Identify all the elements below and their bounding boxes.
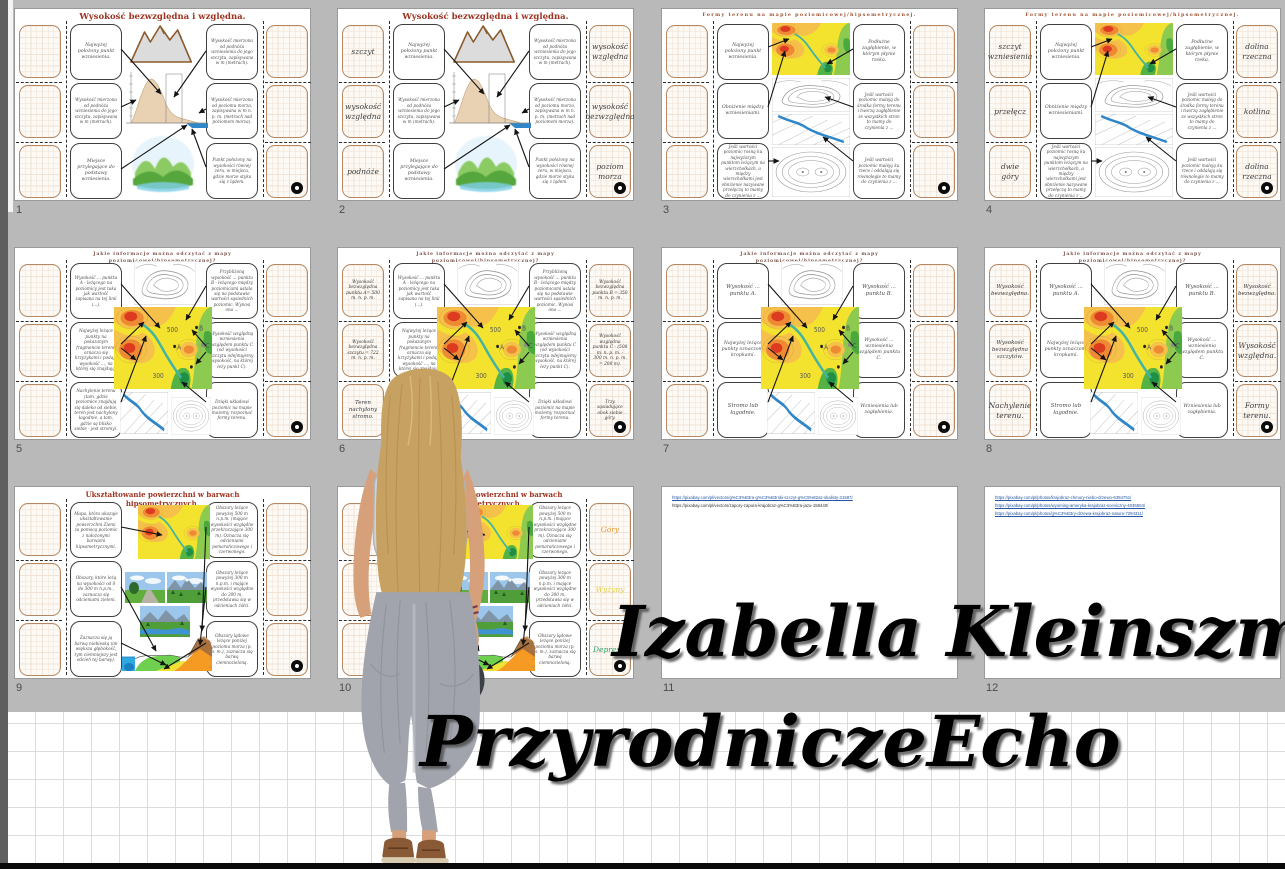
clue-text: Najwyżej leżące punkty oznaczono kropkam… [1044, 341, 1088, 359]
svg-text:B: B [1169, 324, 1173, 333]
clue-box: Punkt położony na wysokości równej zeru,… [206, 143, 258, 199]
dashed-divider [663, 82, 709, 83]
answer-text: dolina rzeczna [1239, 42, 1275, 61]
clue-text: Wzniesienia lub zagłębienia. [1180, 404, 1224, 416]
svg-text:A: A [1147, 343, 1151, 352]
clue-box: Stromo lub łagodnie. [717, 382, 769, 438]
clue-text: Wysokość ... wzniesienia względem punktu… [857, 338, 901, 362]
clue-text: Punkt położony na wysokości równej zeru,… [533, 157, 577, 184]
hide-answers-icon[interactable] [614, 182, 626, 194]
hide-answers-icon[interactable] [938, 421, 950, 433]
clue-box: Jeśli wartości poziomic maleją ku rzece … [1176, 143, 1228, 199]
clue-box: Dzięki układowi poziomic na mapie możemy… [529, 382, 581, 438]
clue-text: Wysokość ... punktu B. [1180, 284, 1224, 298]
clue-box: Przybliżoną wysokość ... punktu B - leżą… [206, 263, 258, 319]
dashed-divider [1235, 321, 1281, 322]
source-links: https://pixabay.com/pl/vectors/g%C3%B3ra… [672, 495, 949, 511]
dashed-divider [16, 381, 62, 382]
answer-box[interactable]: Wysokość bezwzględna. [989, 264, 1031, 317]
clue-box: Obszary leżące powyżej 500 m n.p.m. (maj… [206, 502, 258, 558]
clue-box: Obszary leżące powyżej 300 m n.p.m. i ma… [529, 561, 581, 617]
dashed-divider [912, 82, 958, 83]
slide-title: Wysokość bezwzględna i względna. [35, 12, 290, 22]
valley-photo [140, 606, 190, 637]
clue-text: Wysokość ... punktu B. [857, 284, 901, 298]
dashed-divider [1235, 82, 1281, 83]
clue-text: Wysokość mierzona od poziomu morza, zapi… [533, 97, 577, 124]
clue-text: Obszary leżące powyżej 500 m n.p.m. (maj… [533, 505, 577, 554]
svg-text:B: B [846, 324, 850, 333]
svg-text:500: 500 [167, 326, 178, 335]
clue-box: Podłużne zagłębienie, w którym płynie rz… [853, 24, 905, 80]
slide-thumbnail[interactable]: Jakie informacje można odczytać z mapy p… [661, 247, 958, 440]
hide-answers-icon[interactable] [938, 182, 950, 194]
answer-text: szczyt [351, 47, 374, 56]
answer-box[interactable] [19, 85, 61, 138]
clue-text: Przybliżoną wysokość ... punktu B - leżą… [533, 269, 577, 313]
clue-text: Obniżenie między wzniesieniami. [721, 105, 765, 117]
dashed-divider [66, 260, 67, 436]
answer-text: wysokość względna [345, 102, 381, 121]
source-links: https://pixabay.com/pl/photos/krajobraz-… [995, 495, 1272, 519]
clue-text: Obszary leżące powyżej 500 m n.p.m. (maj… [210, 505, 254, 554]
answer-text: przełęcz [994, 107, 1026, 116]
dashed-divider [986, 142, 1032, 143]
elevation-profile-image [445, 66, 531, 132]
svg-text:B: B [199, 324, 203, 333]
dashed-divider [912, 142, 958, 143]
answer-text: dwie góry [992, 162, 1028, 181]
answer-box[interactable]: kotlina [1236, 85, 1278, 138]
dashed-divider [16, 620, 62, 621]
river-contour-image [772, 114, 850, 145]
left-edge-strip [0, 0, 8, 869]
dashed-divider [265, 381, 311, 382]
answer-box[interactable]: Wysokość bezwzględna szczytów. [989, 324, 1031, 377]
slide-thumbnail[interactable]: Jakie informacje można odczytać z mapy p… [984, 247, 1281, 440]
clue-box: Obniżenie między wzniesieniami. [1040, 83, 1092, 139]
answer-box[interactable] [666, 145, 708, 198]
contour-map-image [457, 261, 519, 305]
svg-text:500: 500 [490, 326, 501, 335]
svg-text:B: B [522, 324, 526, 333]
clue-text: Wzniesienia lub zagłębienia. [857, 404, 901, 416]
clue-text: Jeśli wartości poziomic maleją do środka… [1180, 92, 1224, 130]
hide-answers-icon[interactable] [1261, 421, 1273, 433]
clue-box: Obniżenie między wzniesieniami. [717, 83, 769, 139]
dashed-divider [16, 82, 62, 83]
slide-number: 1 [16, 204, 22, 216]
dashed-divider [16, 560, 62, 561]
answer-box[interactable]: Góry [589, 503, 631, 556]
clue-text: Podłużne zagłębienie, w którym płynie rz… [1180, 40, 1224, 64]
clue-box: Jeśli wartości poziomic maleją do środka… [1176, 83, 1228, 139]
dashed-divider [713, 21, 714, 197]
dashed-divider [986, 381, 1032, 382]
answer-box[interactable] [266, 324, 308, 377]
answer-box[interactable] [19, 25, 61, 78]
source-link[interactable]: https://pixabay.com/pl/photos/g%C3%B3ry-… [995, 511, 1272, 517]
slide-number: 7 [663, 443, 669, 455]
two-peaks-contour-image [1141, 397, 1181, 435]
hide-answers-icon[interactable] [291, 182, 303, 194]
dashed-divider [912, 321, 958, 322]
slide-number: 5 [16, 443, 22, 455]
answer-text: Nachylenie terenu. [989, 401, 1032, 420]
svg-text:300: 300 [1123, 371, 1134, 380]
clue-box: Miejsce przylegające do podstawy wzniesi… [70, 143, 122, 199]
answer-text: Trzy sąsiadujące obok siebie góry. [592, 400, 628, 422]
answer-box[interactable] [913, 85, 955, 138]
svg-text:300: 300 [153, 371, 164, 380]
answer-box[interactable] [266, 25, 308, 78]
answer-box[interactable] [19, 264, 61, 317]
answer-box[interactable] [19, 563, 61, 616]
dashed-divider [586, 499, 587, 675]
clue-text: Wysokość mierzona od podnóża wzniesienia… [533, 38, 577, 65]
clue-box: Wysokość mierzona od podnóża wzniesienia… [70, 83, 122, 139]
two-peaks-contour-image [171, 397, 211, 435]
clue-text: Wysokość mierzona od podnóża wzniesienia… [210, 38, 254, 65]
dashed-divider [910, 21, 911, 197]
clue-text: Miejsce przylegające do podstawy wzniesi… [397, 159, 441, 183]
dashed-divider [713, 260, 714, 436]
clue-text: Nachylenie terenu (tam, gdzie poziomice … [74, 388, 118, 432]
answer-box[interactable]: wysokość względna [589, 25, 631, 78]
clue-text: Punkt położony na wysokości równej zeru,… [210, 157, 254, 184]
slide-thumbnail[interactable]: Formy terenu na mapie poziomicowej/hipso… [661, 8, 958, 201]
slide-thumbnail[interactable]: Jakie informacje można odczytać z mapy p… [14, 247, 311, 440]
svg-text:C: C [853, 341, 857, 350]
clue-text: Wysokość mierzona od podnóża wzniesienia… [397, 97, 441, 124]
dashed-divider [265, 560, 311, 561]
source-link[interactable]: https://pixabay.com/pl/vectors/g%C3%B3ra… [672, 495, 949, 501]
clue-text: Wysokość ... punktu A - leżącego na pozi… [397, 275, 441, 308]
clue-box: Najwyżej położony punkt wzniesienia. [70, 24, 122, 80]
dashed-divider [1233, 260, 1234, 436]
clue-box: Wysokość ... punktu B. [853, 263, 905, 319]
answer-box[interactable] [666, 264, 708, 317]
clue-text: Jeśli wartości poziomic rosną ku najwyżs… [1044, 144, 1088, 199]
answer-box[interactable] [913, 25, 955, 78]
clue-text: Wysokość względną wzniesienia względem p… [210, 331, 254, 369]
clue-text: Najwyżej leżące punkty na pokazanym frag… [74, 328, 118, 372]
clue-box: Wysokość mierzona od podnóża wzniesienia… [206, 24, 258, 80]
landscape-photo [125, 572, 165, 603]
clue-text: Wysokość ... punktu A - leżącego na pozi… [74, 275, 118, 308]
clue-box: Wysokość ... wzniesienia względem punktu… [1176, 322, 1228, 378]
dashed-divider [1233, 21, 1234, 197]
answer-text: podnóże [347, 167, 379, 176]
two-peaks-contour-image [818, 397, 858, 435]
contour-map-image [1095, 78, 1173, 112]
slide-number: 4 [986, 204, 992, 216]
dashed-divider [16, 142, 62, 143]
answer-text: wysokość względna [592, 42, 628, 61]
slide-number: 12 [986, 682, 998, 694]
clue-text: Obszary leżące powyżej 300 m n.p.m. i ma… [533, 570, 577, 608]
answer-box[interactable] [666, 25, 708, 78]
clue-text: Jeśli wartości poziomic maleją do środka… [857, 92, 901, 130]
slide-number: 9 [16, 682, 22, 694]
answer-text: Góry [601, 525, 619, 534]
dashed-divider [1235, 381, 1281, 382]
dashed-divider [1036, 21, 1037, 197]
answer-box[interactable]: podnóże [342, 145, 384, 198]
dashed-divider [1235, 142, 1281, 143]
answer-box[interactable] [913, 264, 955, 317]
clue-box: Wysokość ... punktu B. [1176, 263, 1228, 319]
answer-box[interactable]: przełęcz [989, 85, 1031, 138]
clue-text: Najwyżej położony punkt wzniesienia. [397, 43, 441, 61]
clue-box: Dzięki układowi poziomic na mapie możemy… [206, 382, 258, 438]
dashed-divider [263, 260, 264, 436]
clue-box: Zaznacza się ją barwą niebieską (im więk… [70, 621, 122, 677]
answer-box[interactable]: Wysokość bezwzględna. [1236, 264, 1278, 317]
dashed-divider [265, 321, 311, 322]
river-contour-image [767, 392, 815, 434]
clue-box: Wysokość ... wzniesienia względem punktu… [853, 322, 905, 378]
person-photo [330, 362, 510, 867]
clue-box: Najwyżej położony punkt wzniesienia. [1040, 24, 1092, 80]
source-link[interactable]: https://pixabay.com/pl/vectors/zapory-za… [672, 503, 949, 509]
clue-text: Wysokość ... wzniesienia względem punktu… [1180, 338, 1224, 362]
answer-text: Wysokość bezwzględna punktu A= 500 m. n.… [345, 280, 381, 302]
clue-text: Podłużne zagłębienie, w którym płynie rz… [857, 40, 901, 64]
dashed-divider [986, 82, 1032, 83]
dashed-divider [339, 142, 385, 143]
answer-text: Wysokość bezwzględna szczytu = 722 m. n.… [345, 340, 381, 362]
clue-box: Podłużne zagłębienie, w którym płynie rz… [1176, 24, 1228, 80]
clue-text: Najwyżej leżące punkty oznaczono kropkam… [721, 341, 765, 359]
svg-text:A: A [824, 343, 828, 352]
hypsometric-map-image: 500ABC300 [114, 307, 212, 389]
dashed-divider [986, 321, 1032, 322]
answer-box[interactable] [266, 563, 308, 616]
clue-box: Wysokość mierzona od poziomu morza, zapi… [206, 83, 258, 139]
answer-box[interactable] [913, 324, 955, 377]
dashed-divider [16, 321, 62, 322]
two-peaks-contour-image [1095, 147, 1173, 197]
clue-text: Wysokość mierzona od podnóża wzniesienia… [74, 97, 118, 124]
clue-box: Obszary lądowe leżące poniżej poziomu mo… [206, 621, 258, 677]
hypsometric-cross-section-image [122, 635, 212, 675]
clue-text: Miejsce przylegające do podstawy wzniesi… [74, 159, 118, 183]
dashed-divider [663, 321, 709, 322]
clue-text: Zaznacza się ją barwą niebieską (im więk… [74, 635, 118, 662]
clue-box: Jeśli wartości poziomic maleją ku rzece … [853, 143, 905, 199]
dashed-divider [265, 620, 311, 621]
dashed-divider [66, 499, 67, 675]
clue-box: Jeśli wartości poziomic maleją do środka… [853, 83, 905, 139]
contour-map-image [1104, 261, 1166, 305]
slide-title: Formy terenu na mapie poziomicowej/hipso… [682, 12, 937, 18]
answer-text: kotlina [1244, 107, 1270, 116]
answer-box[interactable]: szczyt wzniesienia [989, 25, 1031, 78]
clue-text: Dzięki układowi poziomic na mapie możemy… [210, 399, 254, 421]
clue-box: Jeśli wartości poziomic rosną ku najwyżs… [717, 143, 769, 199]
dashed-divider [265, 82, 311, 83]
clue-box: Wysokość względną wzniesienia względem p… [206, 322, 258, 378]
hide-answers-icon[interactable] [614, 421, 626, 433]
mountains-sketch-image [450, 22, 524, 64]
svg-text:300: 300 [800, 371, 811, 380]
dashed-divider [663, 142, 709, 143]
answer-box[interactable]: dolina rzeczna [1236, 25, 1278, 78]
answer-box[interactable] [266, 264, 308, 317]
answer-box[interactable] [266, 85, 308, 138]
dashed-divider [586, 260, 587, 436]
clue-box: Stromo lub łagodnie. [1040, 382, 1092, 438]
clue-box: Wzniesienia lub zagłębienia. [853, 382, 905, 438]
clue-text: Wysokość ... punktu A. [721, 284, 765, 298]
answer-text: Wysokość bezwzględna. [991, 284, 1029, 298]
dashed-divider [910, 260, 911, 436]
answer-box[interactable] [666, 324, 708, 377]
clue-box: Wysokość względną wzniesienia względem p… [529, 322, 581, 378]
answer-box[interactable] [19, 623, 61, 676]
dashed-divider [263, 499, 264, 675]
clue-text: Jeśli wartości poziomic rosną ku najwyżs… [721, 144, 765, 199]
dashed-divider [389, 21, 390, 197]
clue-box: Mapa, która ukazuje ukształtowanie powie… [70, 502, 122, 558]
slide-thumbnail[interactable]: Formy terenu na mapie poziomicowej/hipso… [984, 8, 1281, 201]
contour-map-image [772, 78, 850, 112]
clue-box: Najwyżej położony punkt wzniesienia. [717, 24, 769, 80]
hypsometric-map-image: 500ABC300 [761, 307, 859, 389]
landscape-image [454, 133, 518, 195]
slide-number: 2 [339, 204, 345, 216]
answer-box[interactable] [666, 85, 708, 138]
dashed-divider [1036, 260, 1037, 436]
answer-box[interactable]: wysokość bezwzględna [589, 85, 631, 138]
slide-thumbnail[interactable]: Ukształtowanie powierzchni w barwach hip… [14, 486, 311, 679]
partial-panel-edge [8, 0, 13, 212]
answer-text: Formy terenu. [1239, 401, 1275, 420]
answer-box[interactable] [19, 324, 61, 377]
answer-text: szczyt wzniesienia [988, 42, 1032, 61]
clue-box: Obszary, które leżą na wysokości od 0 do… [70, 561, 122, 617]
dashed-divider [263, 21, 264, 197]
mountains-sketch-image [127, 22, 201, 64]
clue-text: Najwyżej położony punkt wzniesienia. [721, 43, 765, 61]
svg-text:C: C [206, 341, 210, 350]
dashed-divider [588, 560, 634, 561]
clue-box: Nachylenie terenu (tam, gdzie poziomice … [70, 382, 122, 438]
brand-title-line1: Izabella Kleinszmidt – [612, 590, 1285, 673]
svg-text:C: C [1176, 341, 1180, 350]
answer-box[interactable] [19, 145, 61, 198]
clue-box: Wysokość mierzona od poziomu morza, zapi… [529, 83, 581, 139]
hide-answers-icon[interactable] [291, 421, 303, 433]
dashed-divider [588, 142, 634, 143]
clue-box: Punkt położony na wysokości równej zeru,… [529, 143, 581, 199]
answer-text: wysokość bezwzględna [585, 102, 634, 121]
slide-number: 8 [986, 443, 992, 455]
slide-title: Formy terenu na mapie poziomicowej/hipso… [1005, 12, 1260, 18]
clue-box: Obszary lądowe leżące poniżej poziomu mo… [529, 621, 581, 677]
clue-text: Najwyżej położony punkt wzniesienia. [74, 43, 118, 61]
answer-box[interactable] [19, 384, 61, 437]
svg-text:C: C [529, 341, 533, 350]
dashed-divider [339, 82, 385, 83]
clue-text: Mapa, która ukazuje ukształtowanie powie… [74, 511, 118, 549]
clue-text: Obszary lądowe leżące poniżej poziomu mo… [210, 633, 254, 666]
answer-text: dolina rzeczna [1239, 162, 1275, 181]
answer-box[interactable]: Wysokość względna. [1236, 324, 1278, 377]
answer-text: Wysokość bezwzględna punktu B = 350 m. n… [592, 280, 628, 302]
hide-answers-icon[interactable] [291, 660, 303, 672]
river-contour-image [1095, 114, 1173, 145]
svg-text:A: A [500, 343, 504, 352]
landscape-image [131, 133, 195, 195]
hypsometric-map-image [1095, 23, 1173, 75]
answer-box[interactable] [666, 384, 708, 437]
answer-box[interactable] [19, 503, 61, 556]
answer-box[interactable]: Wysokość względna punktu C - (508 m. n. … [589, 324, 631, 377]
answer-text: Wysokość bezwzględna szczytów. [992, 340, 1028, 361]
clue-box: Najwyżej położony punkt wzniesienia. [393, 24, 445, 80]
river-contour-image [120, 392, 168, 434]
dashed-divider [588, 82, 634, 83]
bottom-black-bar [0, 863, 1285, 869]
two-peaks-contour-image [772, 147, 850, 197]
clue-text: Obszary lądowe leżące poniżej poziomu mo… [533, 633, 577, 666]
dashed-divider [66, 21, 67, 197]
clue-text: Obniżenie między wzniesieniami. [1044, 105, 1088, 117]
answer-box[interactable]: Wysokość bezwzględna punktu A= 500 m. n.… [342, 264, 384, 317]
clue-text: Najwyżej położony punkt wzniesienia. [1044, 43, 1088, 61]
clue-text: Wysokość względną wzniesienia względem p… [533, 331, 577, 369]
clue-box: Miejsce przylegające do podstawy wzniesi… [393, 143, 445, 199]
dashed-divider [912, 381, 958, 382]
answer-text: poziom morza [592, 162, 628, 181]
dashed-divider [588, 381, 634, 382]
answer-box[interactable]: Wysokość bezwzględna punktu B = 350 m. n… [589, 264, 631, 317]
clue-text: Obszary, które leżą na wysokości od 0 do… [74, 575, 118, 602]
clue-text: Przybliżoną wysokość ... punktu B - leżą… [210, 269, 254, 313]
clue-text: Obszary leżące powyżej 300 m n.p.m. i ma… [210, 570, 254, 608]
slide-thumbnail[interactable]: Wysokość bezwzględna i względna.Najwyżej… [14, 8, 311, 201]
slide-number: 11 [663, 682, 674, 694]
clue-box: Wysokość mierzona od podnóża wzniesienia… [393, 83, 445, 139]
slide-thumbnail[interactable]: Wysokość bezwzględna i względna.szczytNa… [337, 8, 634, 201]
elevation-profile-image [122, 66, 208, 132]
answer-box[interactable]: wysokość względna [342, 85, 384, 138]
hypsometric-map-image [772, 23, 850, 75]
source-link[interactable]: https://pixabay.com/pl/photos/wyoming-am… [995, 503, 1272, 509]
source-link[interactable]: https://pixabay.com/pl/photos/krajobraz-… [995, 495, 1272, 501]
clue-box: Przybliżoną wysokość ... punktu B - leżą… [529, 263, 581, 319]
hide-answers-icon[interactable] [1261, 182, 1273, 194]
answer-box[interactable]: szczyt [342, 25, 384, 78]
clue-box: Obszary leżące powyżej 300 m n.p.m. i ma… [206, 561, 258, 617]
clue-text: Wysokość ... punktu A. [1044, 284, 1088, 298]
answer-box[interactable]: Nachylenie terenu. [989, 384, 1031, 437]
dashed-divider [339, 321, 385, 322]
brand-title-line2: PrzyrodniczeEcho [420, 700, 1120, 783]
hypsometric-map-image: 500ABC300 [1084, 307, 1182, 389]
clue-box: Jeśli wartości poziomic rosną ku najwyżs… [1040, 143, 1092, 199]
clue-text: Jeśli wartości poziomic maleją ku rzece … [857, 157, 901, 184]
clue-text: Stromo lub łagodnie. [1044, 403, 1088, 417]
answer-box[interactable] [266, 503, 308, 556]
clue-box: Wysokość mierzona od podnóża wzniesienia… [529, 24, 581, 80]
hypsometric-map-image [138, 505, 210, 559]
river-contour-image [1090, 392, 1138, 434]
answer-box[interactable]: dwie góry [989, 145, 1031, 198]
slide-number: 3 [663, 204, 669, 216]
